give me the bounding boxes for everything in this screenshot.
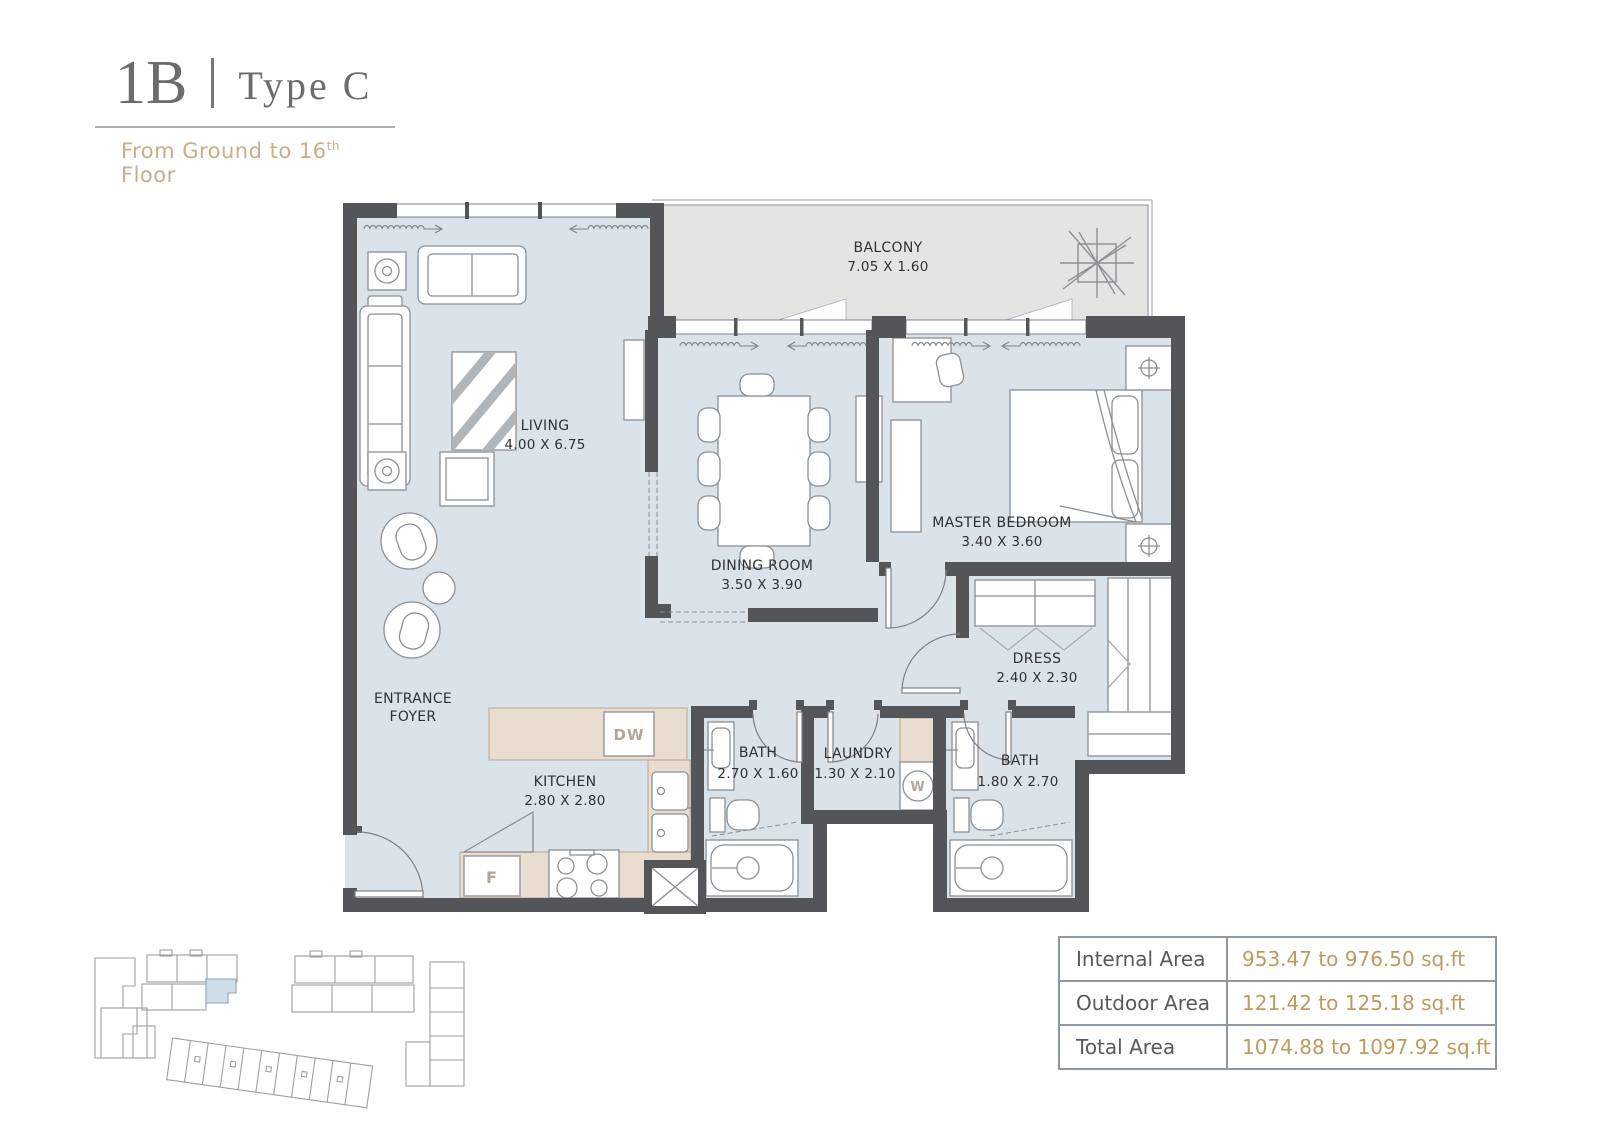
living-label: LIVING <box>521 418 570 434</box>
slanted-building <box>167 1038 373 1108</box>
laundry-dims: 1.30 X 2.10 <box>814 766 895 782</box>
kitchen-dims: 2.80 X 2.80 <box>524 793 605 809</box>
site-key-plan <box>95 950 464 1108</box>
stove <box>549 850 619 898</box>
outdoor-area-label: Outdoor Area <box>1060 982 1228 1024</box>
master-bedroom-dims: 3.40 X 3.60 <box>961 534 1042 550</box>
highlighted-unit <box>206 979 236 1003</box>
living-dims: 4.00 X 6.75 <box>504 437 585 453</box>
dishwasher-label: DW <box>614 726 645 744</box>
sofa <box>418 246 526 304</box>
bed <box>1010 390 1142 522</box>
total-area-value: 1074.88 to 1097.92 sq.ft <box>1228 1026 1495 1068</box>
washer-label: W <box>910 780 925 795</box>
armchair-round <box>384 602 440 658</box>
laundry-label: LAUNDRY <box>824 746 893 762</box>
balcony-label: BALCONY <box>854 240 923 256</box>
master-bedroom-label: MASTER BEDROOM <box>932 515 1071 531</box>
total-area-label: Total Area <box>1060 1026 1228 1068</box>
table-row: Outdoor Area 121.42 to 125.18 sq.ft <box>1060 980 1495 1024</box>
internal-area-label: Internal Area <box>1060 938 1228 980</box>
kitchen-label: KITCHEN <box>534 774 597 790</box>
nightstand <box>1126 524 1172 568</box>
table-row: Internal Area 953.47 to 976.50 sq.ft <box>1060 938 1495 980</box>
dining-table <box>698 374 830 568</box>
speaker-table <box>368 252 406 290</box>
bath-master-label: BATH <box>1001 753 1039 769</box>
dresser <box>891 420 921 532</box>
nightstand <box>1126 346 1172 390</box>
speaker-table <box>368 452 406 490</box>
bath-small-label: BATH <box>739 745 777 761</box>
bath-small-dims: 2.70 X 1.60 <box>717 766 798 782</box>
table-row: Total Area 1074.88 to 1097.92 sq.ft <box>1060 1024 1495 1068</box>
area-table: Internal Area 953.47 to 976.50 sq.ft Out… <box>1058 936 1497 1070</box>
tv-unit <box>624 340 644 420</box>
dining-dims: 3.50 X 3.90 <box>721 577 802 593</box>
entrance-foyer-label2: FOYER <box>390 709 437 725</box>
dress-label: DRESS <box>1013 651 1062 667</box>
outdoor-area-value: 121.42 to 125.18 sq.ft <box>1228 982 1495 1024</box>
balcony-dims: 7.05 X 1.60 <box>847 259 928 275</box>
floorplan-page: 1B Type C From Ground to 16th Floor <box>0 0 1600 1132</box>
entrance-foyer-label: ENTRANCE <box>374 691 452 707</box>
fridge-label: F <box>486 868 498 887</box>
shaft <box>648 864 702 910</box>
dining-label: DINING ROOM <box>711 558 813 574</box>
bath-master-dims: 1.80 X 2.70 <box>977 774 1058 790</box>
side-table <box>440 452 494 506</box>
dress-dims: 2.40 X 2.30 <box>996 670 1077 686</box>
internal-area-value: 953.47 to 976.50 sq.ft <box>1228 938 1495 980</box>
shelf-unit <box>1088 712 1172 756</box>
